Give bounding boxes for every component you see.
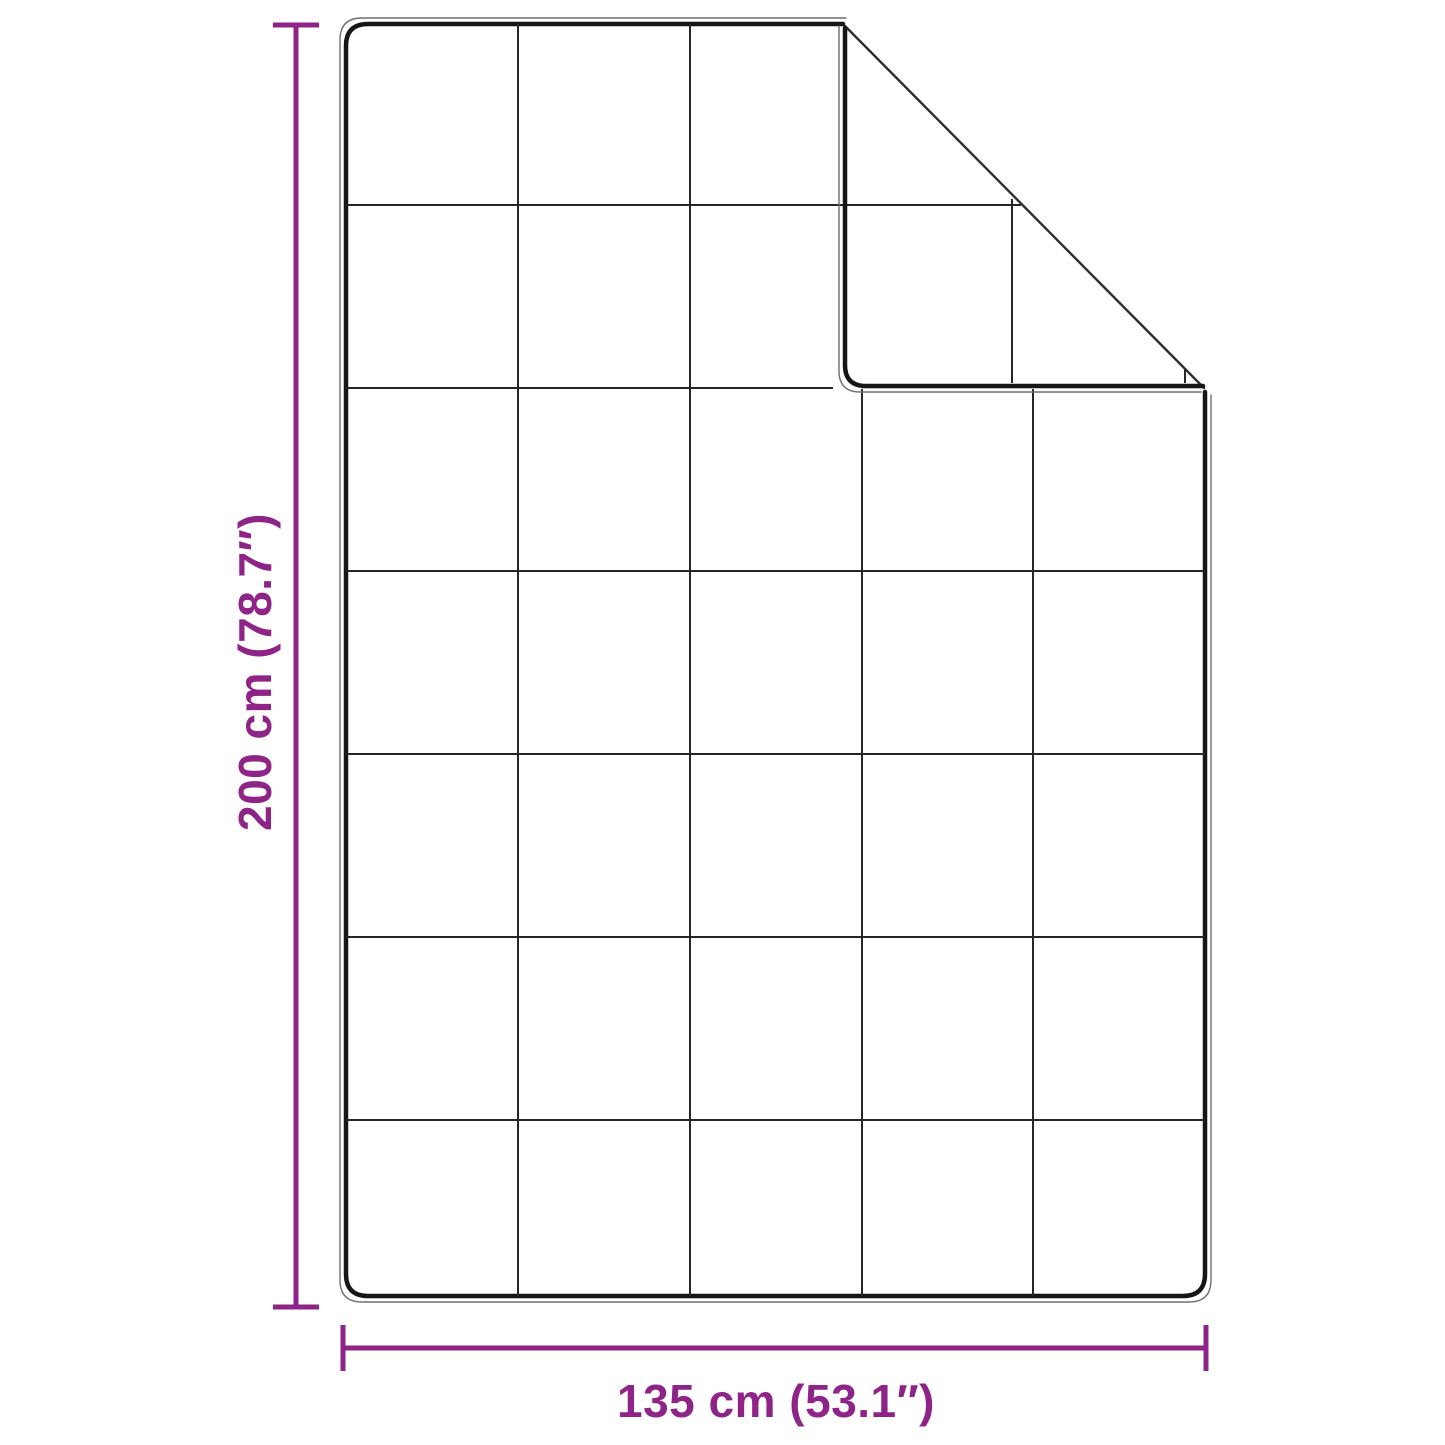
width-dimension-label: 135 cm (53.1″): [617, 1375, 935, 1427]
blanket-outline: [340, 18, 1211, 1302]
quilt-grid: [346, 24, 1205, 1296]
blanket-outline-piping: [340, 18, 1211, 1302]
height-dimension-label: 200 cm (78.7″): [229, 513, 281, 831]
width-dimension: 135 cm (53.1″): [343, 1325, 1206, 1427]
height-dimension: 200 cm (78.7″): [229, 25, 319, 1307]
blanket-outline-hem: [346, 24, 1205, 1296]
flap-edge-piping: [839, 26, 1201, 392]
diagram-svg: 200 cm (78.7″) 135 cm (53.1″): [0, 0, 1445, 1445]
blanket-dimension-diagram: 200 cm (78.7″) 135 cm (53.1″): [0, 0, 1445, 1445]
fold-crease: [845, 26, 1204, 388]
fold-flap: [839, 26, 1204, 392]
